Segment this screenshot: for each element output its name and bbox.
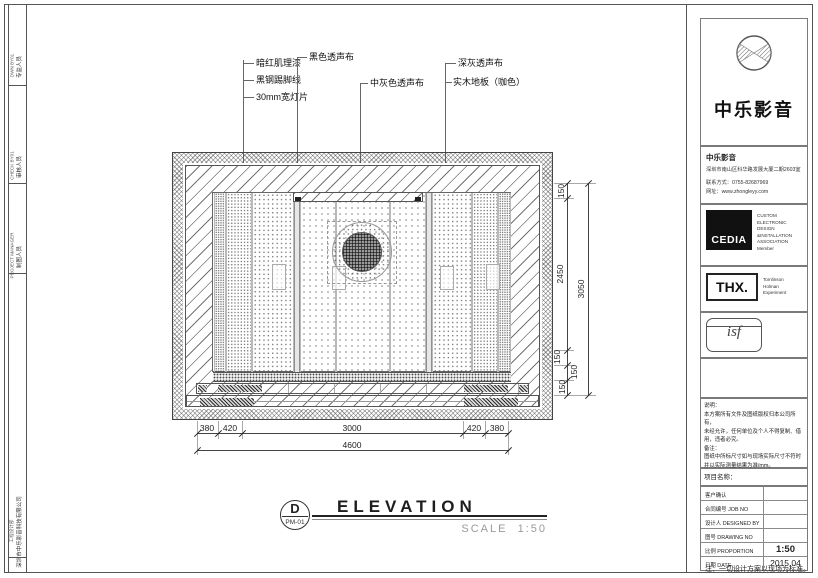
company-name: 中乐影音 — [706, 152, 736, 163]
scale-value-cell: 1:50 — [763, 543, 807, 556]
table-row: 设计人 DESIGNED BY — [701, 515, 807, 529]
dim-value: 150 — [557, 370, 567, 404]
material-label-black-cloth: 黑色透声布 — [309, 52, 354, 62]
table-row: 合同编号 JOB NO — [701, 501, 807, 515]
leader-tick — [297, 57, 307, 58]
left-strip-label: 审核人员 — [15, 137, 23, 197]
view-title-text: ELEVATION — [337, 497, 477, 517]
dim-value: 380 — [482, 423, 512, 433]
row-value — [763, 529, 807, 542]
leader-tick — [445, 82, 452, 83]
row-label: 合同编号 JOB NO — [705, 505, 748, 513]
dim-total-line — [197, 450, 509, 451]
left-strip-divider — [9, 557, 26, 558]
cedia-line: Member — [757, 246, 807, 253]
row-label: 比例 PROPORTION — [705, 547, 753, 555]
material-label-lightstrip: 30mm宽灯片 — [256, 92, 308, 102]
company-website: 网址：www.zhongleyy.com — [706, 189, 804, 196]
left-strip-sublabel: DWN BY01 — [10, 36, 15, 96]
dim-value: 150 — [556, 174, 566, 208]
dim-total-value: 4600 — [332, 440, 372, 450]
left-strip-divider — [9, 183, 26, 184]
scale-value: 1:50 — [518, 523, 547, 535]
thx-text: Tomlinson Holman Experiment — [763, 277, 807, 297]
notes-text: 说明： 本方案所有文件及图纸版权归本公司所有， 未经允许，任何单位及个人不得复制… — [704, 402, 804, 470]
wall-fixture — [486, 264, 500, 290]
dim-value: 150 — [569, 355, 579, 389]
cedia-line: DESIGN &INSTALLATION — [757, 226, 807, 239]
row-value — [763, 487, 807, 500]
row-value — [763, 501, 807, 514]
row-label-en: JOB NO — [728, 507, 748, 513]
left-strip-sublabel: CHECK BY01 — [10, 136, 15, 196]
left-strip-label: 制图人员 — [15, 227, 23, 287]
company-address: 深圳市南山区科华路发展大厦二期2603室 — [706, 167, 804, 174]
dim-value: 420 — [215, 423, 245, 433]
acoustic-panel-dark — [214, 193, 226, 372]
acoustic-panel-medium — [226, 193, 252, 372]
left-strip-divider — [9, 85, 26, 86]
titleblock-empty-box — [700, 358, 808, 398]
left-strip-company: 深圳市中乐影音科技有限公司 — [15, 472, 23, 578]
project-name-label: 项目名称： — [704, 471, 737, 481]
recess-end-detail — [415, 197, 421, 201]
drawing-sheet: 专监人员 DWN BY01 审核人员 CHECK BY01 制图人员 PROJE… — [0, 0, 818, 578]
notes-line: 用，违者必究。 — [704, 436, 804, 445]
row-label-zh: 比例 — [705, 549, 716, 555]
row-label: 图号 DRAWING NO — [705, 533, 753, 541]
speaker-grille — [342, 232, 382, 272]
row-label: 设计人 DESIGNED BY — [705, 519, 760, 527]
view-mark-divider — [282, 516, 308, 517]
dim-total-value: 3050 — [576, 272, 586, 306]
recess-end-detail — [295, 197, 301, 201]
thx-line: Experiment — [763, 290, 807, 297]
view-title-underline-thin — [312, 519, 547, 520]
notes-line: 本方案所有文件及图纸版权归本公司所有， — [704, 411, 804, 428]
table-row: 客户确认 — [701, 487, 807, 501]
row-label: 客户确认 — [705, 491, 728, 499]
thx-logo: THX. — [706, 273, 758, 301]
row-label-zh: 合同编号 — [705, 507, 727, 513]
company-phone: 联系方式：0755-82687969 — [706, 180, 804, 187]
floor-hatch-block — [218, 385, 262, 392]
leader-tick — [243, 97, 254, 98]
brand-name: 中乐影音 — [700, 96, 808, 122]
row-label-zh: 图号 — [705, 535, 716, 541]
brand-logo-icon — [735, 34, 773, 72]
footnote-text: 注：一切设计方案以现场为标准。 — [600, 564, 810, 574]
left-strip-inner-line — [26, 4, 27, 573]
cedia-text: CUSTOM ELECTRONIC DESIGN &INSTALLATION A… — [757, 213, 807, 252]
notes-line: 未经允许，任何单位及个人不得复制、借 — [704, 428, 804, 437]
view-mark-letter: D — [280, 501, 310, 516]
row-label-en: DESIGNED BY — [723, 521, 760, 527]
row-label-zh: 客户确认 — [705, 493, 727, 499]
cedia-line: CUSTOM ELECTRONIC — [757, 213, 807, 226]
floor-hatch-block — [519, 385, 528, 392]
floor-hatch-block — [198, 385, 207, 392]
left-strip-dept: 工程设计部 — [9, 501, 15, 561]
floor-hatch-block — [464, 398, 518, 406]
leader-tick — [243, 63, 254, 64]
row-value — [763, 515, 807, 528]
leader-tick — [243, 80, 254, 81]
floor-hatch-block — [200, 398, 254, 406]
row-label-zh: 设计人 — [705, 521, 721, 527]
notes-line: 说明： — [704, 402, 804, 411]
titleblock-table: 客户确认 合同编号 JOB NO 设计人 DESIGNED BY 图号 DRAW… — [700, 486, 808, 571]
wall-fixture — [440, 266, 454, 290]
left-strip-divider — [9, 273, 26, 274]
material-label-wood-floor: 实木地板（咖色） — [453, 77, 525, 87]
table-row: 图号 DRAWING NO — [701, 529, 807, 543]
scale-label: SCALE — [461, 523, 507, 535]
floor-hatch-block — [464, 385, 508, 392]
view-scale-text: SCALE 1:50 — [400, 523, 547, 535]
notes-line: 备注： — [704, 445, 804, 454]
table-row: 比例 PROPORTION 1:50 — [701, 543, 807, 557]
material-label-paint: 暗红肌理漆 — [256, 58, 301, 68]
dim-value: 150 — [552, 340, 562, 374]
view-mark-code: PM-01 — [280, 519, 310, 526]
dim-total-line — [588, 183, 589, 395]
left-strip-sublabel: PROJECT MANAGER — [10, 226, 15, 286]
wall-fixture — [272, 264, 286, 290]
leader-tick — [360, 83, 368, 84]
cedia-logo: CEDIA — [706, 210, 752, 250]
dim-value: 2450 — [555, 257, 565, 291]
notes-line: 图纸中所标尺寸如与现场实际尺寸不符时 — [704, 453, 804, 462]
row-label-en: DRAWING NO — [717, 535, 752, 541]
leader-tick — [445, 63, 456, 64]
isf-logo: isf — [706, 324, 762, 341]
floor-speckle-strip — [213, 372, 511, 382]
material-label-midgray-cloth: 中灰色透声布 — [370, 78, 424, 88]
ceiling-recess — [293, 192, 423, 202]
material-label-darkgray-cloth: 深灰透声布 — [458, 58, 503, 68]
titleblock-divider-line — [686, 4, 687, 573]
row-label-en: PROPORTION — [717, 549, 753, 555]
material-label-skirting: 黑钢踢脚线 — [256, 75, 301, 85]
left-strip-label: 专监人员 — [15, 37, 23, 97]
dim-value: 3000 — [332, 423, 372, 433]
